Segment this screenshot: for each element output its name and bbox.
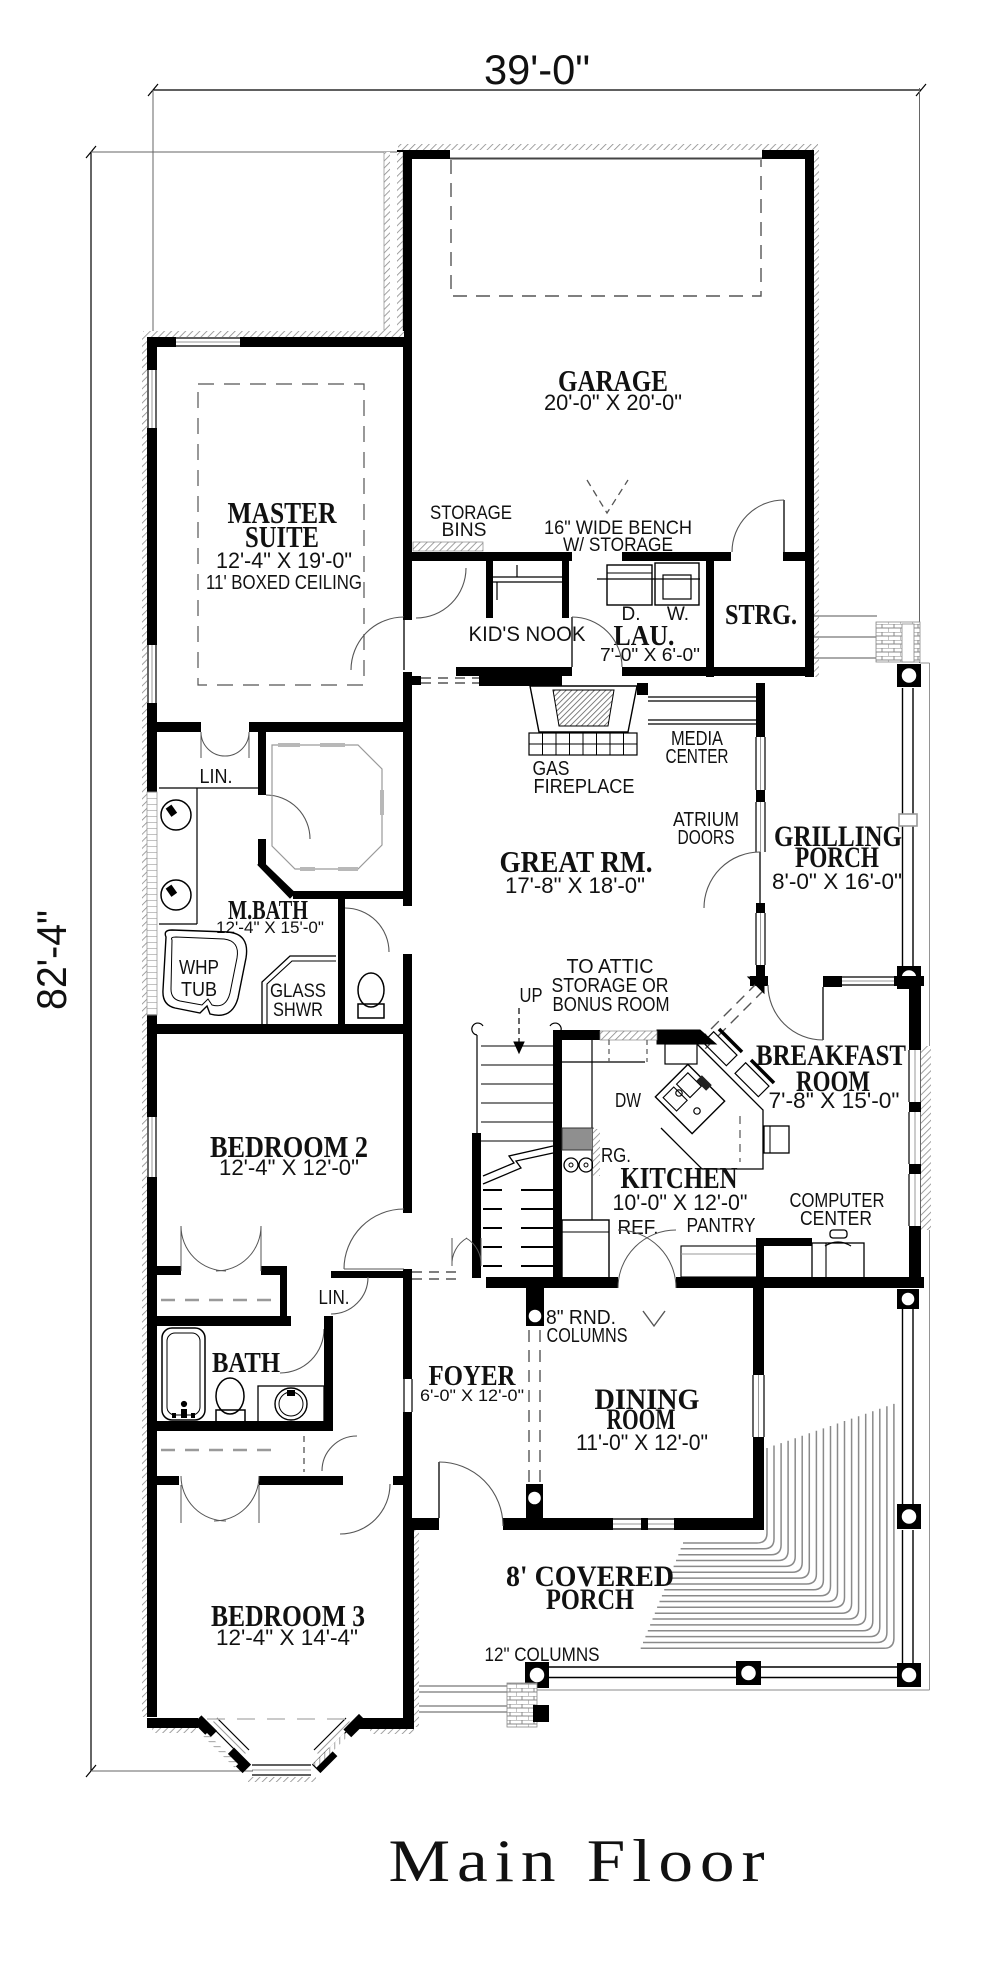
svg-text:STRG.: STRG. xyxy=(725,600,797,631)
svg-text:BINS: BINS xyxy=(442,520,487,541)
svg-text:6'-0" X 12'-0": 6'-0" X 12'-0" xyxy=(420,1386,524,1405)
svg-text:UP: UP xyxy=(520,985,543,1007)
svg-text:KID'S NOOK: KID'S NOOK xyxy=(469,623,586,646)
svg-text:DW: DW xyxy=(615,1090,641,1112)
svg-text:12'-4" X 19'-0": 12'-4" X 19'-0" xyxy=(216,548,352,573)
svg-text:W/ STORAGE: W/ STORAGE xyxy=(563,535,673,556)
svg-text:WHP: WHP xyxy=(179,957,219,979)
svg-text:CENTER: CENTER xyxy=(666,746,729,768)
svg-text:11' BOXED CEILING: 11' BOXED CEILING xyxy=(206,572,362,594)
svg-text:BONUS ROOM: BONUS ROOM xyxy=(553,994,670,1016)
svg-text:COLUMNS: COLUMNS xyxy=(547,1325,628,1347)
svg-text:BATH: BATH xyxy=(212,1348,280,1379)
svg-text:LIN.: LIN. xyxy=(200,766,233,788)
svg-text:Main Floor: Main Floor xyxy=(389,1828,772,1894)
svg-text:FIREPLACE: FIREPLACE xyxy=(534,776,635,798)
svg-text:17'-8" X 18'-0": 17'-8" X 18'-0" xyxy=(505,873,645,898)
svg-text:DOORS: DOORS xyxy=(678,827,735,849)
svg-text:12'-4" X 12'-0": 12'-4" X 12'-0" xyxy=(219,1155,359,1180)
svg-text:SHWR: SHWR xyxy=(273,1000,323,1021)
svg-text:10'-0" X 12'-0": 10'-0" X 12'-0" xyxy=(613,1190,748,1215)
svg-text:CENTER: CENTER xyxy=(800,1208,872,1230)
svg-text:LIN.: LIN. xyxy=(319,1287,350,1309)
svg-text:7'-0" X 6'-0": 7'-0" X 6'-0" xyxy=(600,645,700,665)
svg-text:82'-4": 82'-4" xyxy=(28,910,75,1010)
svg-text:7'-8" X 15'-0": 7'-8" X 15'-0" xyxy=(769,1088,900,1113)
svg-text:12" COLUMNS: 12" COLUMNS xyxy=(485,1645,600,1666)
svg-text:PANTRY: PANTRY xyxy=(687,1215,756,1237)
svg-text:39'-0": 39'-0" xyxy=(484,46,590,93)
svg-text:PORCH: PORCH xyxy=(546,1583,634,1616)
svg-text:11'-0" X 12'-0": 11'-0" X 12'-0" xyxy=(576,1430,708,1455)
svg-text:GLASS: GLASS xyxy=(270,981,326,1002)
svg-text:12'-4" X 15'-0": 12'-4" X 15'-0" xyxy=(216,918,324,937)
svg-text:REF.: REF. xyxy=(618,1217,659,1239)
svg-text:12'-4" X 14'-4": 12'-4" X 14'-4" xyxy=(216,1625,358,1650)
svg-text:TUB: TUB xyxy=(181,979,217,1001)
svg-text:20'-0" X 20'-0": 20'-0" X 20'-0" xyxy=(544,390,682,415)
svg-text:8'-0" X 16'-0": 8'-0" X 16'-0" xyxy=(772,869,902,894)
